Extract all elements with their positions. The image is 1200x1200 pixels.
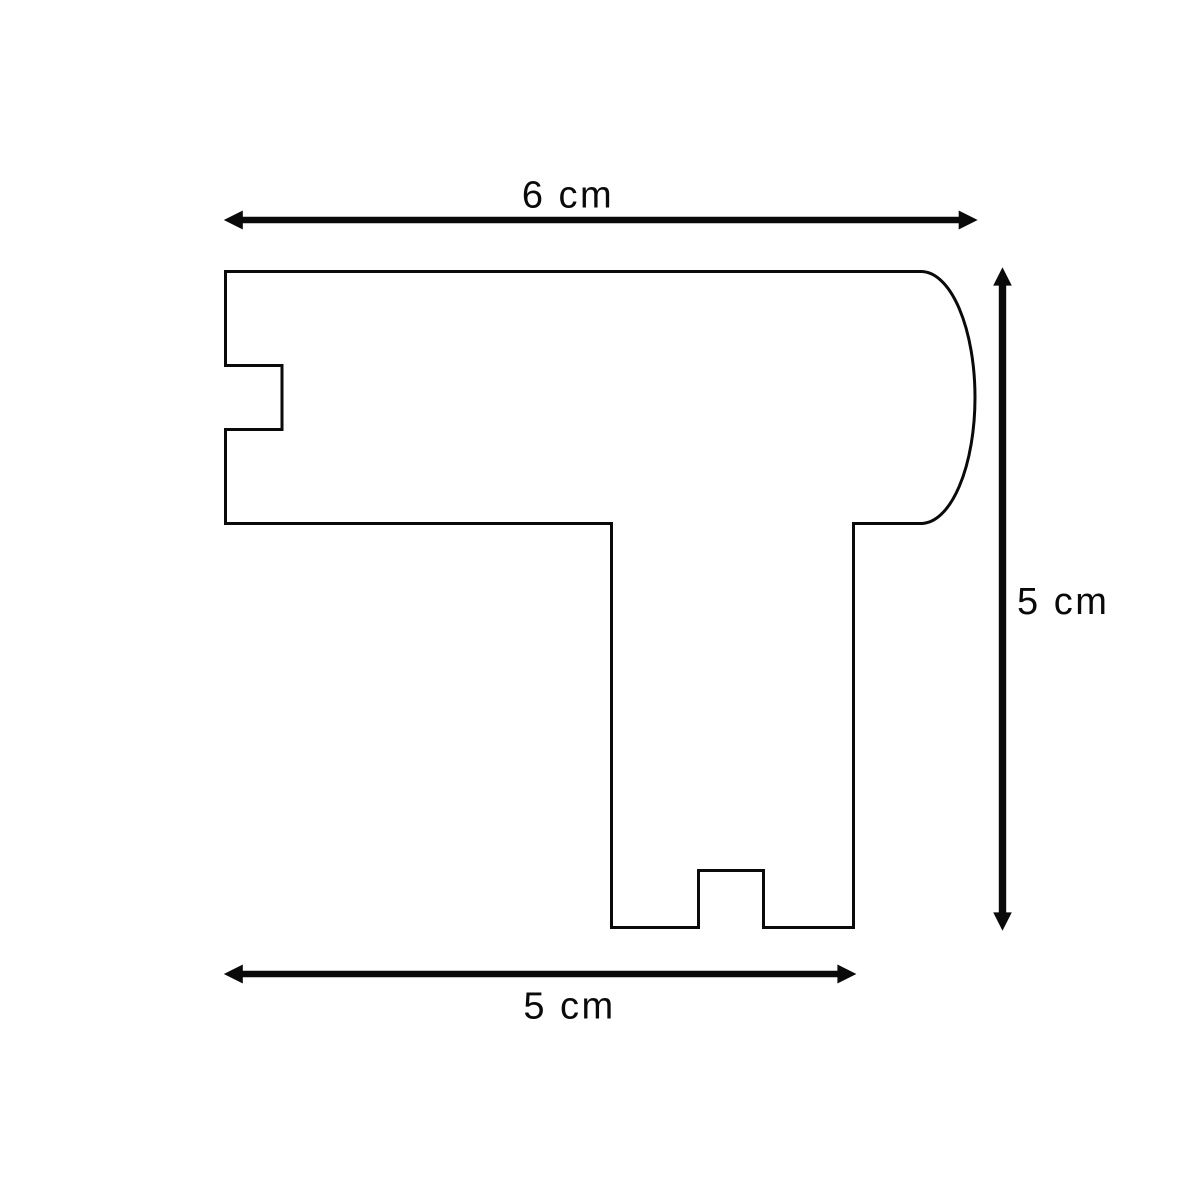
svg-text:5 cm: 5 cm — [523, 986, 615, 1028]
svg-text:5 cm: 5 cm — [1017, 581, 1109, 623]
svg-text:6 cm: 6 cm — [522, 175, 614, 217]
